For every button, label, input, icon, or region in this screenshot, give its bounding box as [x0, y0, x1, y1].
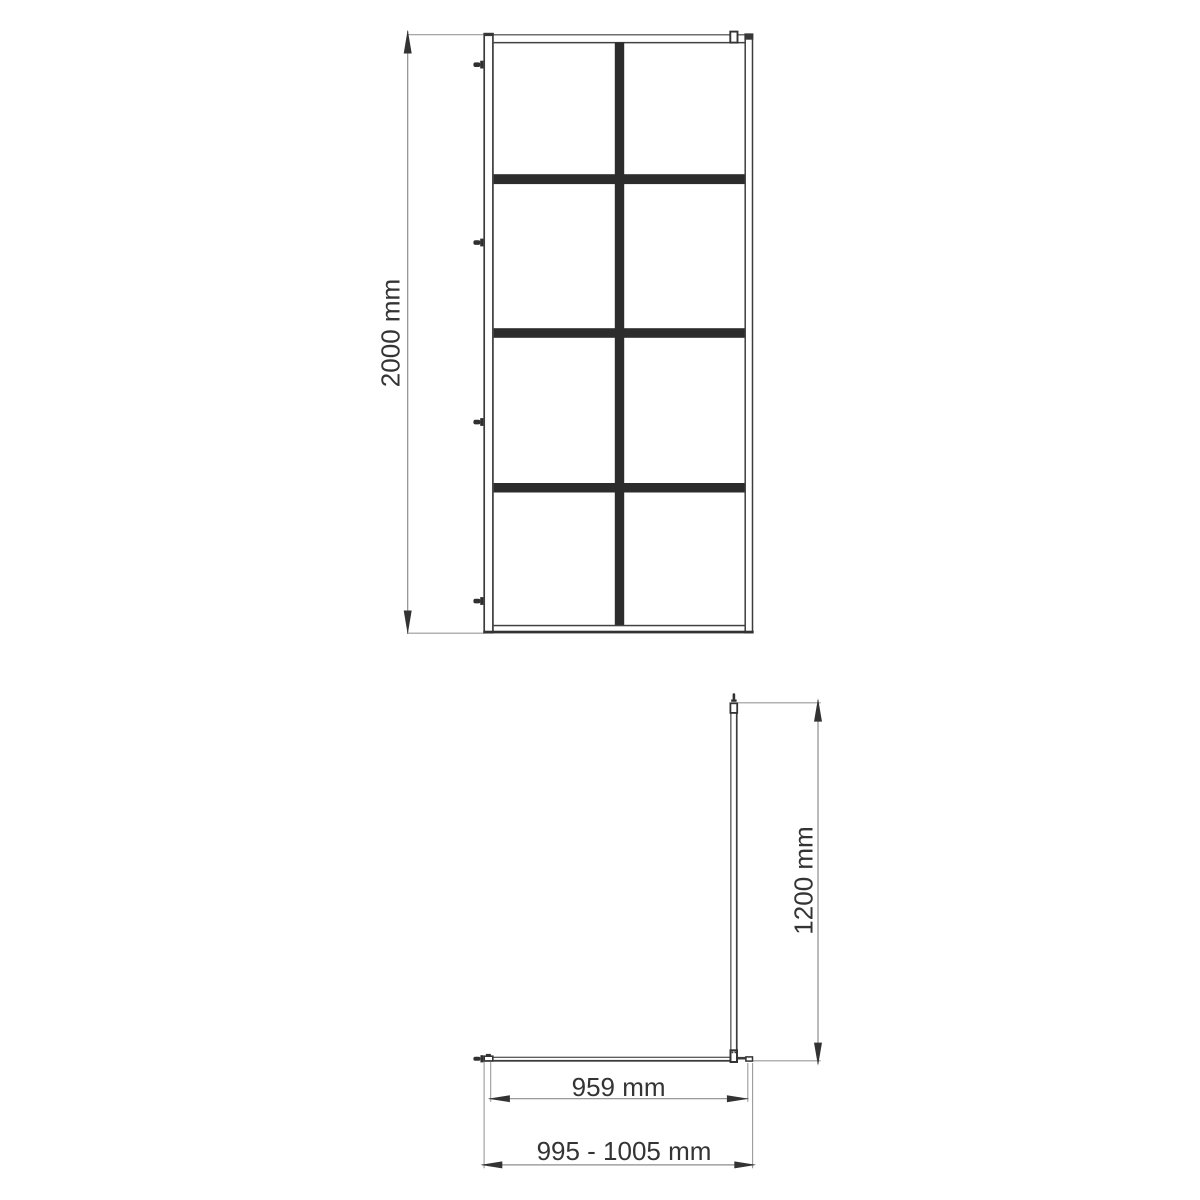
- svg-text:959 mm: 959 mm: [572, 1072, 666, 1102]
- svg-text:2000 mm: 2000 mm: [376, 279, 406, 387]
- svg-text:995 - 1005 mm: 995 - 1005 mm: [537, 1136, 712, 1166]
- svg-text:1200 mm: 1200 mm: [789, 826, 819, 934]
